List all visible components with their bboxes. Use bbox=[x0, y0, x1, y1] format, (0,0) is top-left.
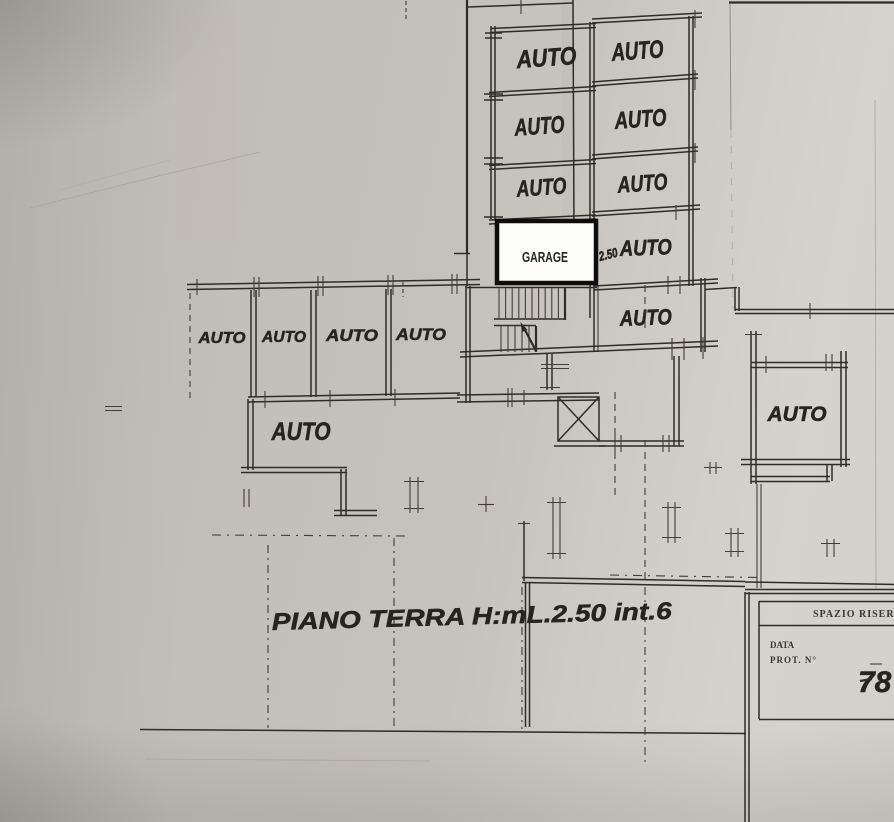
svg-text:AUTO: AUTO bbox=[515, 172, 568, 201]
svg-text:PIANO TERRA H:mL.2.50 int.6: PIANO TERRA H:mL.2.50 int.6 bbox=[271, 598, 672, 636]
svg-text:AUTO: AUTO bbox=[515, 42, 578, 74]
svg-text:AUTO: AUTO bbox=[271, 418, 331, 446]
svg-text:AUTO: AUTO bbox=[613, 104, 668, 135]
svg-text:AUTO: AUTO bbox=[395, 325, 446, 344]
svg-text:2.50: 2.50 bbox=[596, 245, 619, 264]
svg-text:DATA: DATA bbox=[770, 640, 795, 650]
svg-text:AUTO: AUTO bbox=[767, 403, 827, 426]
svg-text:AUTO: AUTO bbox=[610, 35, 665, 67]
svg-text:AUTO: AUTO bbox=[261, 329, 307, 346]
svg-text:SPAZIO RISERVA: SPAZIO RISERVA bbox=[813, 609, 894, 620]
svg-text:AUTO: AUTO bbox=[616, 168, 669, 197]
svg-text:AUTO: AUTO bbox=[197, 330, 246, 347]
svg-text:AUTO: AUTO bbox=[325, 326, 378, 345]
svg-text:78: 78 bbox=[858, 666, 892, 699]
svg-text:AUTO: AUTO bbox=[618, 234, 672, 261]
svg-text:PROT. N°: PROT. N° bbox=[770, 655, 817, 665]
svg-text:AUTO: AUTO bbox=[513, 111, 566, 141]
svg-text:GARAGE: GARAGE bbox=[522, 250, 568, 266]
